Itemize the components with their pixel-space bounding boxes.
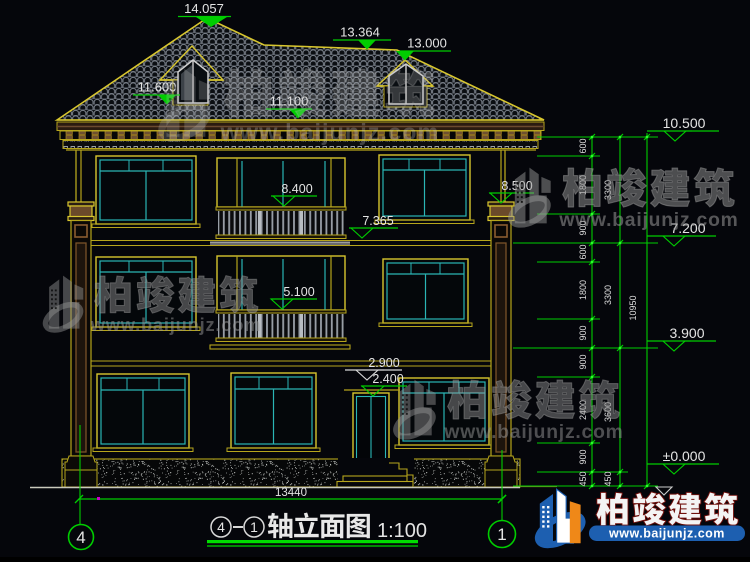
svg-text:10950: 10950 [628,295,638,320]
svg-text:8.400: 8.400 [281,182,312,196]
svg-text:900: 900 [578,449,588,464]
svg-text:www.baijunjz.com: www.baijunjz.com [443,422,623,443]
svg-text:10.500: 10.500 [663,115,706,131]
svg-text:5.100: 5.100 [283,285,314,299]
svg-text:±0.000: ±0.000 [663,448,706,464]
svg-text:600: 600 [578,244,588,259]
svg-text:www.baijunjz.com: www.baijunjz.com [558,210,738,231]
svg-text:www.baijunjz.com: www.baijunjz.com [90,314,262,335]
svg-text:450: 450 [578,471,588,486]
svg-text:2.900: 2.900 [368,356,399,370]
svg-text:www.baijunjz.com: www.baijunjz.com [608,527,725,541]
svg-text:7.365: 7.365 [362,214,393,228]
svg-text:4: 4 [76,528,85,547]
svg-text:600: 600 [578,138,588,153]
svg-text:900: 900 [578,354,588,369]
svg-text:13.364: 13.364 [340,25,380,40]
svg-text:3300: 3300 [603,285,613,305]
svg-text:1:100: 1:100 [377,520,427,542]
svg-text:900: 900 [578,325,588,340]
svg-text:3.900: 3.900 [669,325,704,341]
svg-text:1: 1 [497,525,506,544]
svg-text:2.400: 2.400 [372,372,403,386]
svg-text:1800: 1800 [578,280,588,300]
svg-text:1: 1 [250,519,258,535]
svg-text:4: 4 [217,519,225,535]
svg-text:www.baijunjz.com: www.baijunjz.com [220,119,440,145]
svg-text:14.057: 14.057 [184,1,224,16]
svg-text:13440: 13440 [275,487,307,499]
svg-text:450: 450 [603,471,613,486]
svg-text:13.000: 13.000 [407,36,447,51]
